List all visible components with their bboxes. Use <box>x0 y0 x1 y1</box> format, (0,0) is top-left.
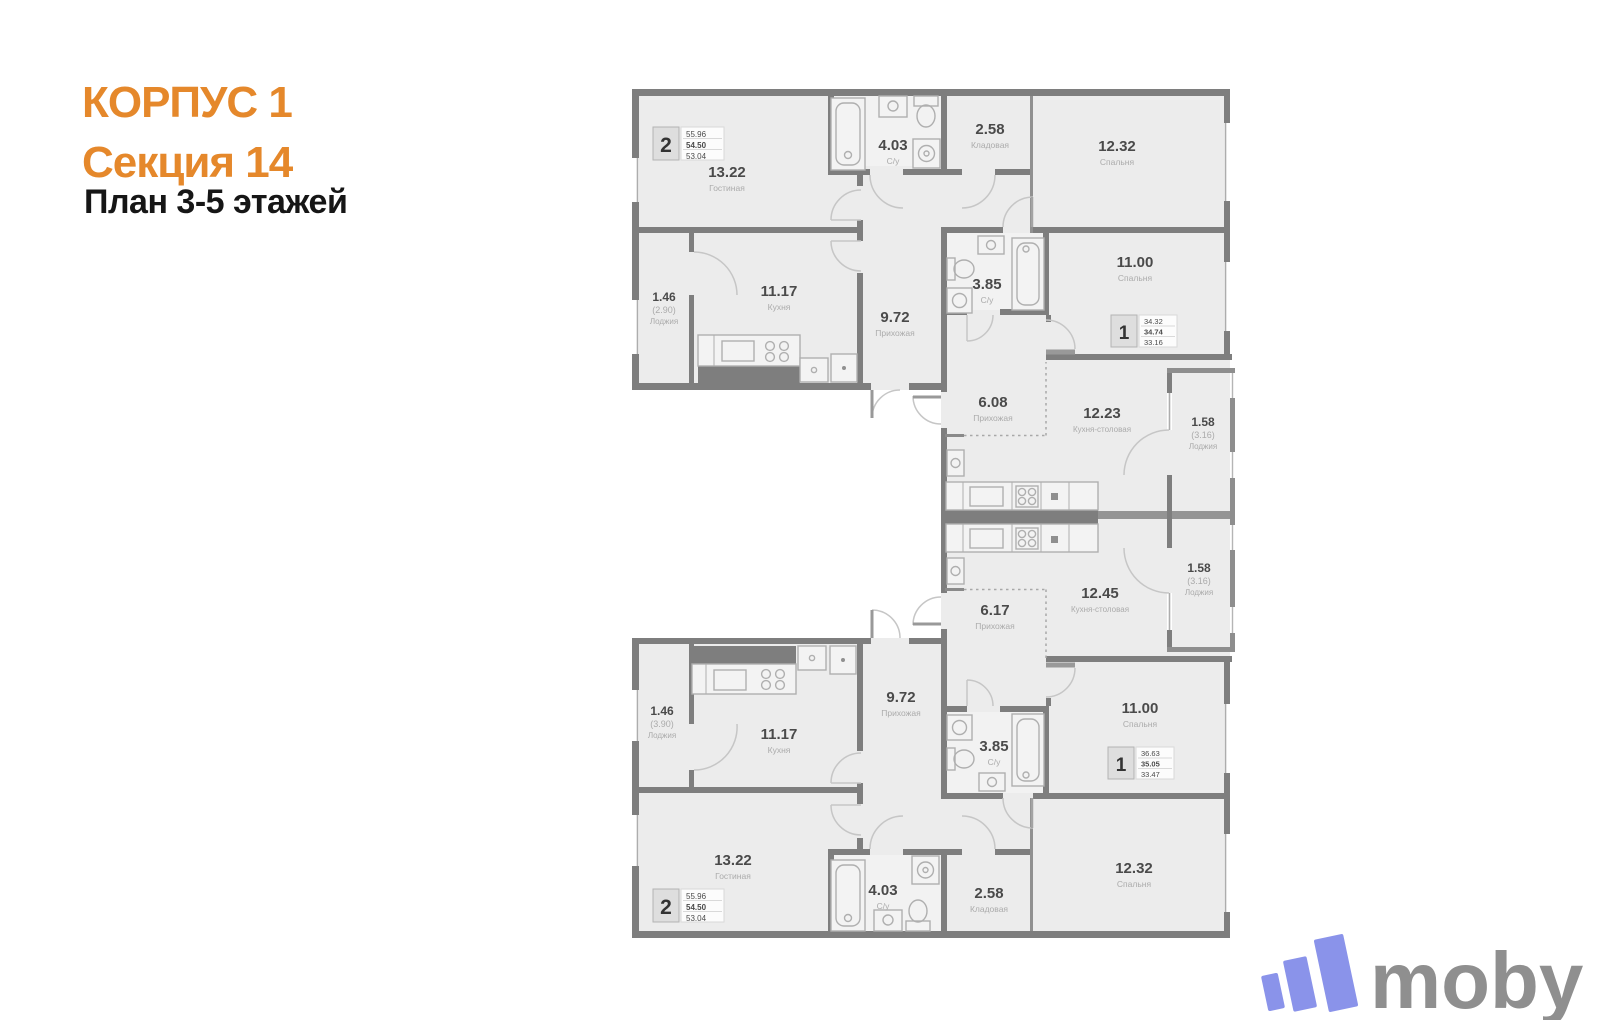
svg-text:Гостиная: Гостиная <box>715 871 751 881</box>
svg-text:2: 2 <box>660 896 672 919</box>
svg-text:33.16: 33.16 <box>1144 338 1163 347</box>
svg-text:13.22: 13.22 <box>708 164 746 181</box>
svg-text:2: 2 <box>660 134 672 157</box>
svg-text:53.04: 53.04 <box>686 152 707 161</box>
svg-text:34.74: 34.74 <box>1144 328 1164 337</box>
svg-text:Кухня: Кухня <box>768 302 791 312</box>
svg-text:1: 1 <box>1116 755 1127 776</box>
svg-text:3.85: 3.85 <box>979 738 1008 755</box>
svg-text:11.00: 11.00 <box>1117 254 1154 271</box>
svg-text:13.22: 13.22 <box>714 852 752 869</box>
svg-text:С/у: С/у <box>887 156 901 166</box>
svg-text:1.58: 1.58 <box>1191 415 1215 429</box>
svg-text:Кухня-столовая: Кухня-столовая <box>1071 605 1129 614</box>
svg-text:Кухня: Кухня <box>768 745 791 755</box>
svg-text:12.32: 12.32 <box>1115 860 1153 877</box>
svg-text:9.72: 9.72 <box>886 689 915 706</box>
svg-text:3.85: 3.85 <box>972 276 1001 293</box>
svg-text:Спальня: Спальня <box>1123 719 1158 729</box>
svg-text:12.32: 12.32 <box>1098 138 1136 155</box>
svg-text:54.50: 54.50 <box>686 141 707 150</box>
svg-text:(3.16): (3.16) <box>1191 430 1215 440</box>
svg-text:54.50: 54.50 <box>686 903 707 912</box>
svg-text:33.47: 33.47 <box>1141 770 1160 779</box>
svg-text:Лоджия: Лоджия <box>650 317 678 326</box>
svg-text:35.05: 35.05 <box>1141 760 1160 769</box>
svg-text:9.72: 9.72 <box>880 309 909 326</box>
svg-text:11.00: 11.00 <box>1122 700 1159 717</box>
svg-text:1: 1 <box>1119 323 1130 344</box>
svg-text:4.03: 4.03 <box>878 137 907 154</box>
svg-text:36.63: 36.63 <box>1141 749 1160 758</box>
svg-text:Кладовая: Кладовая <box>971 140 1009 150</box>
svg-text:Кладовая: Кладовая <box>970 904 1008 914</box>
svg-text:11.17: 11.17 <box>761 283 798 300</box>
svg-text:2.58: 2.58 <box>974 885 1003 902</box>
svg-text:Гостиная: Гостиная <box>709 183 745 193</box>
svg-text:(3.90): (3.90) <box>650 719 674 729</box>
svg-text:12.23: 12.23 <box>1083 405 1121 422</box>
svg-text:moby: moby <box>1370 936 1584 1020</box>
svg-text:Спальня: Спальня <box>1117 879 1152 889</box>
svg-text:34.32: 34.32 <box>1144 317 1163 326</box>
svg-text:Лоджия: Лоджия <box>648 731 676 740</box>
svg-text:Спальня: Спальня <box>1100 157 1135 167</box>
svg-text:С/у: С/у <box>981 295 995 305</box>
svg-text:Прихожая: Прихожая <box>973 413 1013 423</box>
svg-text:Лоджия: Лоджия <box>1185 588 1213 597</box>
svg-text:12.45: 12.45 <box>1081 585 1119 602</box>
svg-text:Лоджия: Лоджия <box>1189 442 1217 451</box>
svg-text:11.17: 11.17 <box>761 726 798 743</box>
svg-text:(3.16): (3.16) <box>1187 576 1211 586</box>
svg-text:Спальня: Спальня <box>1118 273 1153 283</box>
svg-text:55.96: 55.96 <box>686 130 707 139</box>
svg-text:6.08: 6.08 <box>978 394 1007 411</box>
svg-text:1.46: 1.46 <box>652 290 676 304</box>
svg-text:Прихожая: Прихожая <box>881 708 921 718</box>
svg-text:С/у: С/у <box>988 757 1002 767</box>
svg-text:55.96: 55.96 <box>686 892 707 901</box>
svg-text:Кухня-столовая: Кухня-столовая <box>1073 425 1131 434</box>
svg-text:1.46: 1.46 <box>650 704 674 718</box>
svg-text:2.58: 2.58 <box>975 121 1004 138</box>
svg-text:4.03: 4.03 <box>868 882 897 899</box>
svg-text:Прихожая: Прихожая <box>975 621 1015 631</box>
svg-text:Прихожая: Прихожая <box>875 328 915 338</box>
svg-text:С/у: С/у <box>877 901 891 911</box>
svg-text:53.04: 53.04 <box>686 914 707 923</box>
svg-text:(2.90): (2.90) <box>652 305 676 315</box>
svg-text:6.17: 6.17 <box>980 602 1009 619</box>
svg-text:1.58: 1.58 <box>1187 561 1211 575</box>
